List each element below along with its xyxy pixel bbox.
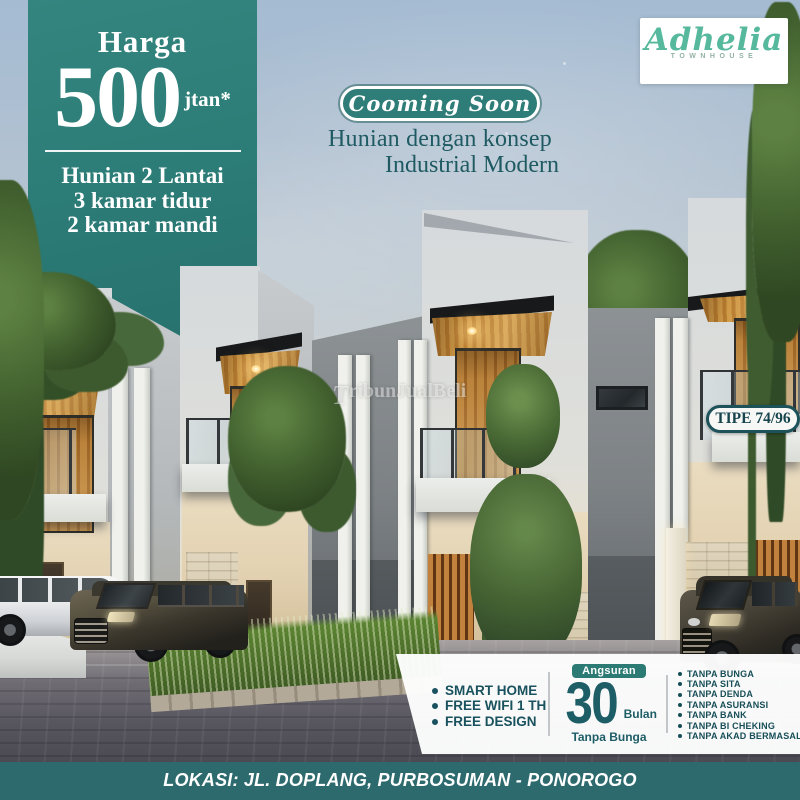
coming-soon-badge: Cooming Soon — [340, 86, 540, 121]
bullet-dot-icon — [678, 724, 682, 728]
watermark-text: ribunJualBeli — [349, 380, 467, 403]
spec-floors: Hunian 2 Lantai — [28, 164, 257, 189]
property-ad-poster: Harga 500 jtan* Hunian 2 Lantai 3 kamar … — [0, 0, 800, 800]
bullet-dot-icon — [678, 734, 682, 738]
bullet-dot-icon — [432, 688, 438, 694]
grille — [74, 618, 108, 644]
windshield — [96, 583, 156, 609]
guarantee-label: TANPA BUNGA — [687, 669, 754, 679]
headlight — [107, 612, 136, 622]
guarantee-label: TANPA SITA — [687, 679, 741, 689]
watermark-initial: T — [332, 380, 349, 410]
perks-list: SMART HOME FREE WIFI 1 TH FREE DESIGN — [432, 683, 536, 730]
house-type-badge: TIPE 74/96 — [706, 405, 800, 433]
brand-name: Adhelia — [640, 23, 788, 57]
perk-item: FREE DESIGN — [432, 714, 536, 730]
downlight — [466, 326, 478, 336]
guarantees-list: TANPA BUNGA TANPA SITA TANPA DENDA TANPA… — [678, 669, 800, 742]
guarantee-item: TANPA BANK — [678, 710, 800, 720]
perk-label: SMART HOME — [445, 683, 537, 699]
installment-block: Angsuran 30 Bulan Tanpa Bunga — [556, 664, 662, 744]
guarantee-item: TANPA ASURANSI — [678, 700, 800, 710]
guarantee-label: TANPA AKAD BERMASALAH — [687, 731, 800, 741]
concept-line-1: Hunian dengan konsep — [290, 126, 590, 153]
side-windows — [752, 582, 798, 606]
guarantee-item: TANPA DENDA — [678, 689, 800, 699]
price-suffix: jtan* — [184, 87, 231, 112]
concept-line-2: Industrial Modern — [354, 152, 590, 179]
perk-item: SMART HOME — [432, 683, 536, 699]
windshield — [696, 580, 753, 610]
brand-logo: Adhelia TOWNHOUSE — [640, 18, 788, 84]
foreground-tree — [470, 474, 582, 664]
house-4-balcony-slab — [712, 432, 800, 462]
bullet-dot-icon — [678, 682, 682, 686]
vertical-divider — [548, 672, 550, 736]
star-dot — [563, 62, 566, 65]
side-windows — [158, 585, 244, 607]
installment-months: 30 — [566, 678, 617, 729]
guarantee-label: TANPA BANK — [687, 710, 747, 720]
headlight — [709, 614, 742, 626]
separator-window — [596, 386, 648, 410]
guarantee-item: TANPA BI CHEKING — [678, 721, 800, 731]
guarantee-item: TANPA AKAD BERMASALAH — [678, 731, 800, 741]
guarantee-item: TANPA SITA — [678, 679, 800, 689]
perk-item: FREE WIFI 1 TH — [432, 698, 536, 714]
location-bar: LOKASI: JL. DOPLANG, PURBOSUMAN - PONORO… — [0, 762, 800, 800]
car-brand-badge — [688, 618, 700, 626]
guarantee-label: TANPA BI CHEKING — [687, 721, 775, 731]
middle-tree — [228, 366, 346, 512]
bullet-dot-icon — [678, 713, 682, 717]
divider-line — [45, 150, 241, 152]
guarantee-item: TANPA BUNGA — [678, 669, 800, 679]
bullet-dot-icon — [678, 703, 682, 707]
bullet-dot-icon — [678, 672, 682, 676]
installment-unit: Bulan — [624, 707, 657, 721]
perk-label: FREE DESIGN — [445, 714, 537, 730]
features-band: SMART HOME FREE WIFI 1 TH FREE DESIGN An… — [376, 654, 800, 754]
site-watermark: TribunJualBeli — [332, 380, 502, 410]
announcement-block: Cooming Soon Hunian dengan konsep Indust… — [290, 86, 590, 179]
vertical-divider — [666, 675, 668, 733]
spec-bedrooms: 3 kamar tidur — [28, 189, 257, 214]
bullet-dot-icon — [432, 719, 438, 725]
perk-label: FREE WIFI 1 TH — [445, 698, 546, 714]
guarantee-label: TANPA ASURANSI — [687, 700, 768, 710]
spec-bathrooms: 2 kamar mandi — [28, 213, 257, 238]
guarantee-label: TANPA DENDA — [687, 689, 753, 699]
bullet-dot-icon — [678, 693, 682, 697]
price-value: 500 — [54, 54, 180, 142]
bullet-dot-icon — [432, 703, 438, 709]
